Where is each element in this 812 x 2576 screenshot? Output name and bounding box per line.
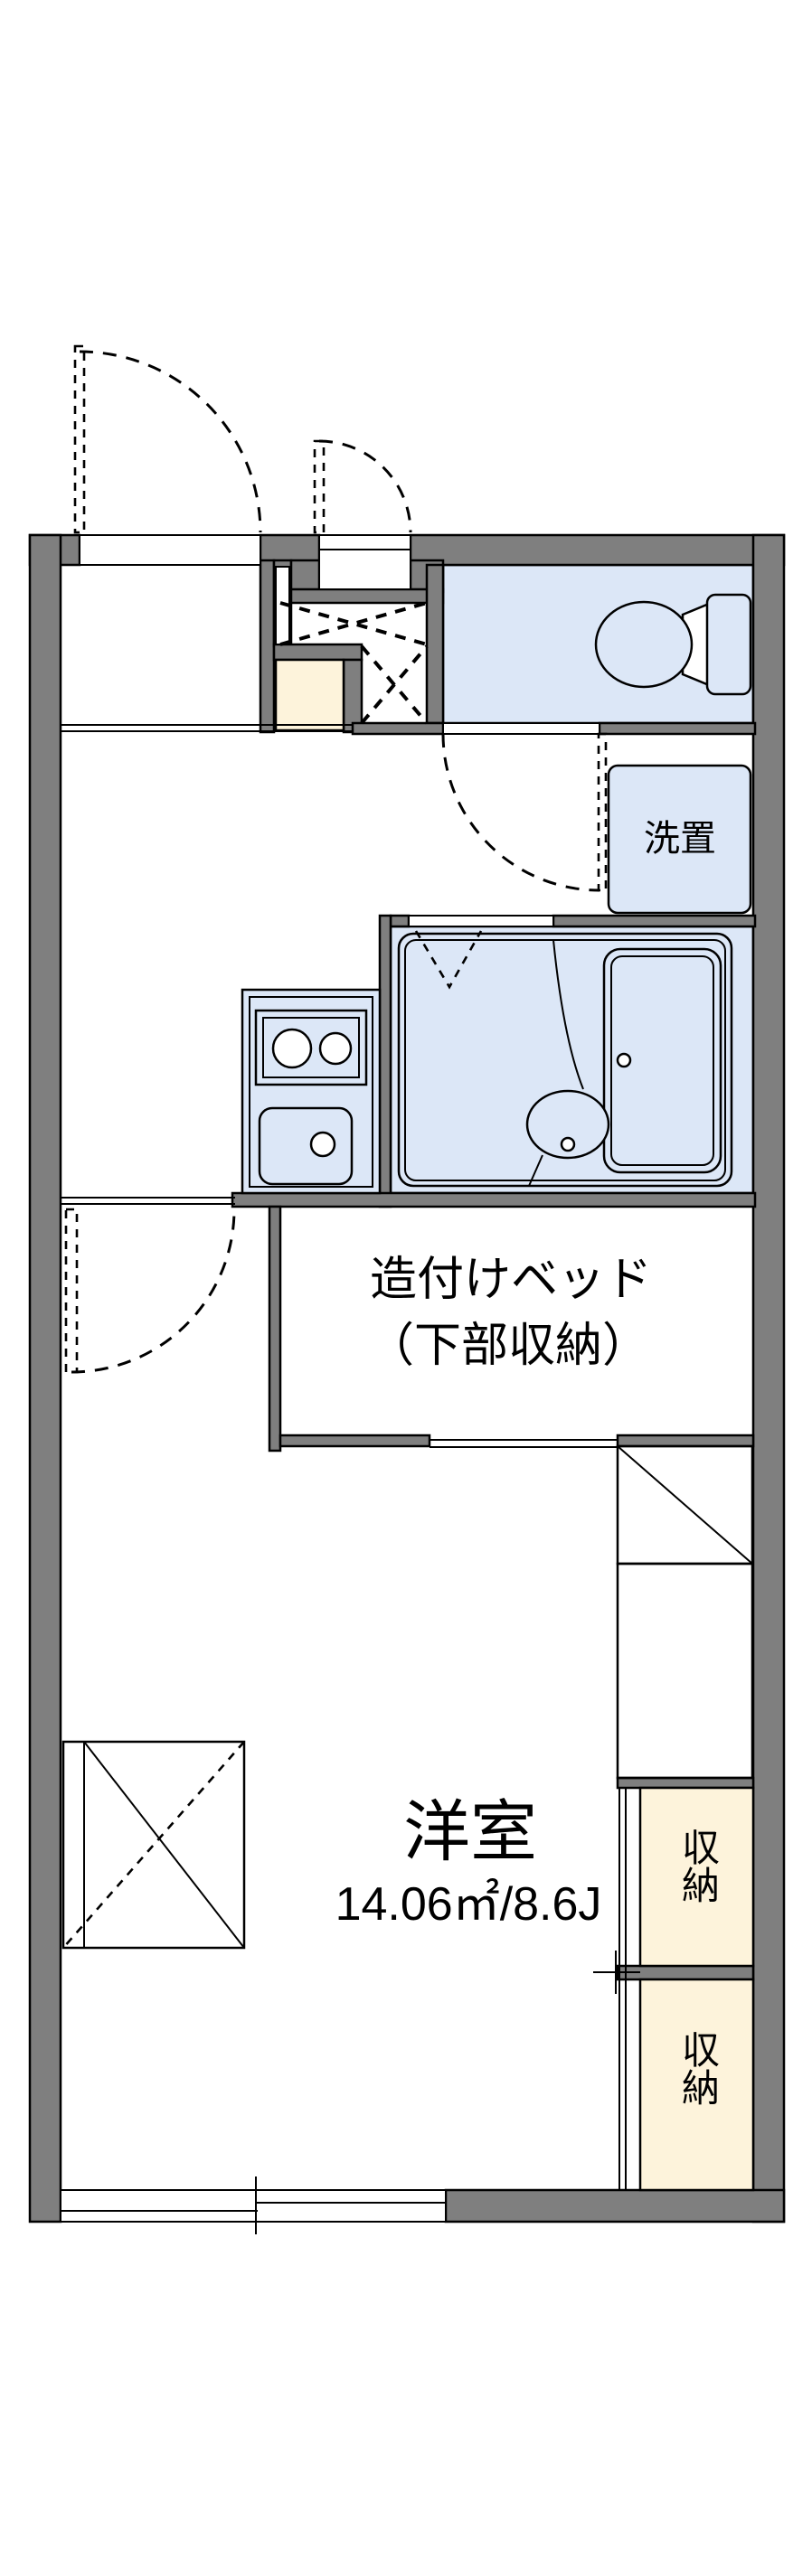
sink-drain (311, 1133, 335, 1156)
toilet-door-opening (443, 723, 600, 734)
toilet-door-swing-arc (443, 734, 600, 890)
toilet-door-leaf (599, 734, 606, 890)
toilet-bottom-wall (600, 723, 755, 734)
stove-burner-right (320, 1033, 351, 1064)
kitchen (242, 990, 380, 1193)
entry-storage-marks (61, 603, 427, 731)
storage-top-wall (291, 589, 443, 603)
bed-area-top-wall (232, 1193, 755, 1207)
right-outer-wall (753, 535, 784, 2222)
bath-top-wall-left (391, 916, 409, 926)
balcony-window (61, 2190, 446, 2222)
built-in-bed-area: 造付けベッド （下部収納） (367, 1254, 652, 1447)
top-wall-right-segment (411, 535, 784, 565)
bed-label-line1: 造付けベッド (370, 1254, 652, 1306)
toilet-tank (707, 595, 751, 694)
washer-space-label: 洗置 (644, 819, 716, 859)
bath-top-wall-right (553, 916, 755, 926)
kitchen-bath-divider-wall (380, 916, 391, 1207)
closet-top-wall (618, 1778, 753, 1788)
floor-plan-page: 洗置 造付けベッド （下部収納） (0, 0, 812, 2576)
bed-area-bottom-wall-right (618, 1435, 753, 1446)
kitchen-sink (260, 1108, 352, 1184)
exterior-storage-alcove (319, 535, 411, 589)
bottom-wall-right-segment (446, 2190, 784, 2222)
room-door-leaf (66, 1209, 77, 1372)
stove-burner-left (273, 1029, 311, 1067)
refrigerator-diagonal (618, 1446, 752, 1564)
room-door-swing-arc (71, 1209, 234, 1372)
bowl-drain (562, 1138, 574, 1151)
western-room-label: 洋室 (403, 1794, 537, 1869)
washer-space: 洗置 (609, 766, 751, 913)
shoe-cabinet-top-wall (274, 644, 362, 660)
toilet-left-wall (427, 565, 443, 723)
alcove-left-jamb (291, 560, 319, 592)
entry-door-leaf (75, 346, 84, 532)
entry-shoe-floor (276, 660, 344, 730)
closet-lower-label: 収納 (677, 2030, 720, 2106)
entry-hall-right-wall (260, 560, 274, 732)
storage-column: 収納 収納 (593, 1446, 753, 2190)
entry-door-swing-arc (80, 352, 260, 532)
bed-area-bottom-wall-left (280, 1435, 430, 1446)
shoe-cabinet-right-wall (344, 660, 362, 732)
western-room: 洋室 14.06㎡/8.6J (63, 1742, 601, 1948)
bed-label-line2: （下部収納） (367, 1320, 649, 1372)
western-room-area-label: 14.06㎡/8.6J (335, 1877, 602, 1931)
open-shelf-space (618, 1564, 752, 1778)
left-outer-wall (30, 535, 61, 2222)
storage-bottom-wall (353, 723, 443, 734)
bath-door-opening (409, 916, 553, 926)
toilet-bowl (596, 602, 692, 687)
entry-door-opening (80, 535, 260, 565)
bed-area-left-wall (269, 1207, 280, 1451)
bathtub-drain (618, 1054, 630, 1067)
storage-door-swing-arc (319, 441, 411, 532)
door-swings (61, 346, 606, 1372)
closet-upper-label: 収納 (677, 1828, 720, 1904)
windows (61, 2176, 446, 2234)
storage-door-leaf (315, 441, 324, 532)
floor-plan: 洗置 造付けベッド （下部収納） (0, 0, 812, 2576)
toilet-room (596, 595, 751, 694)
